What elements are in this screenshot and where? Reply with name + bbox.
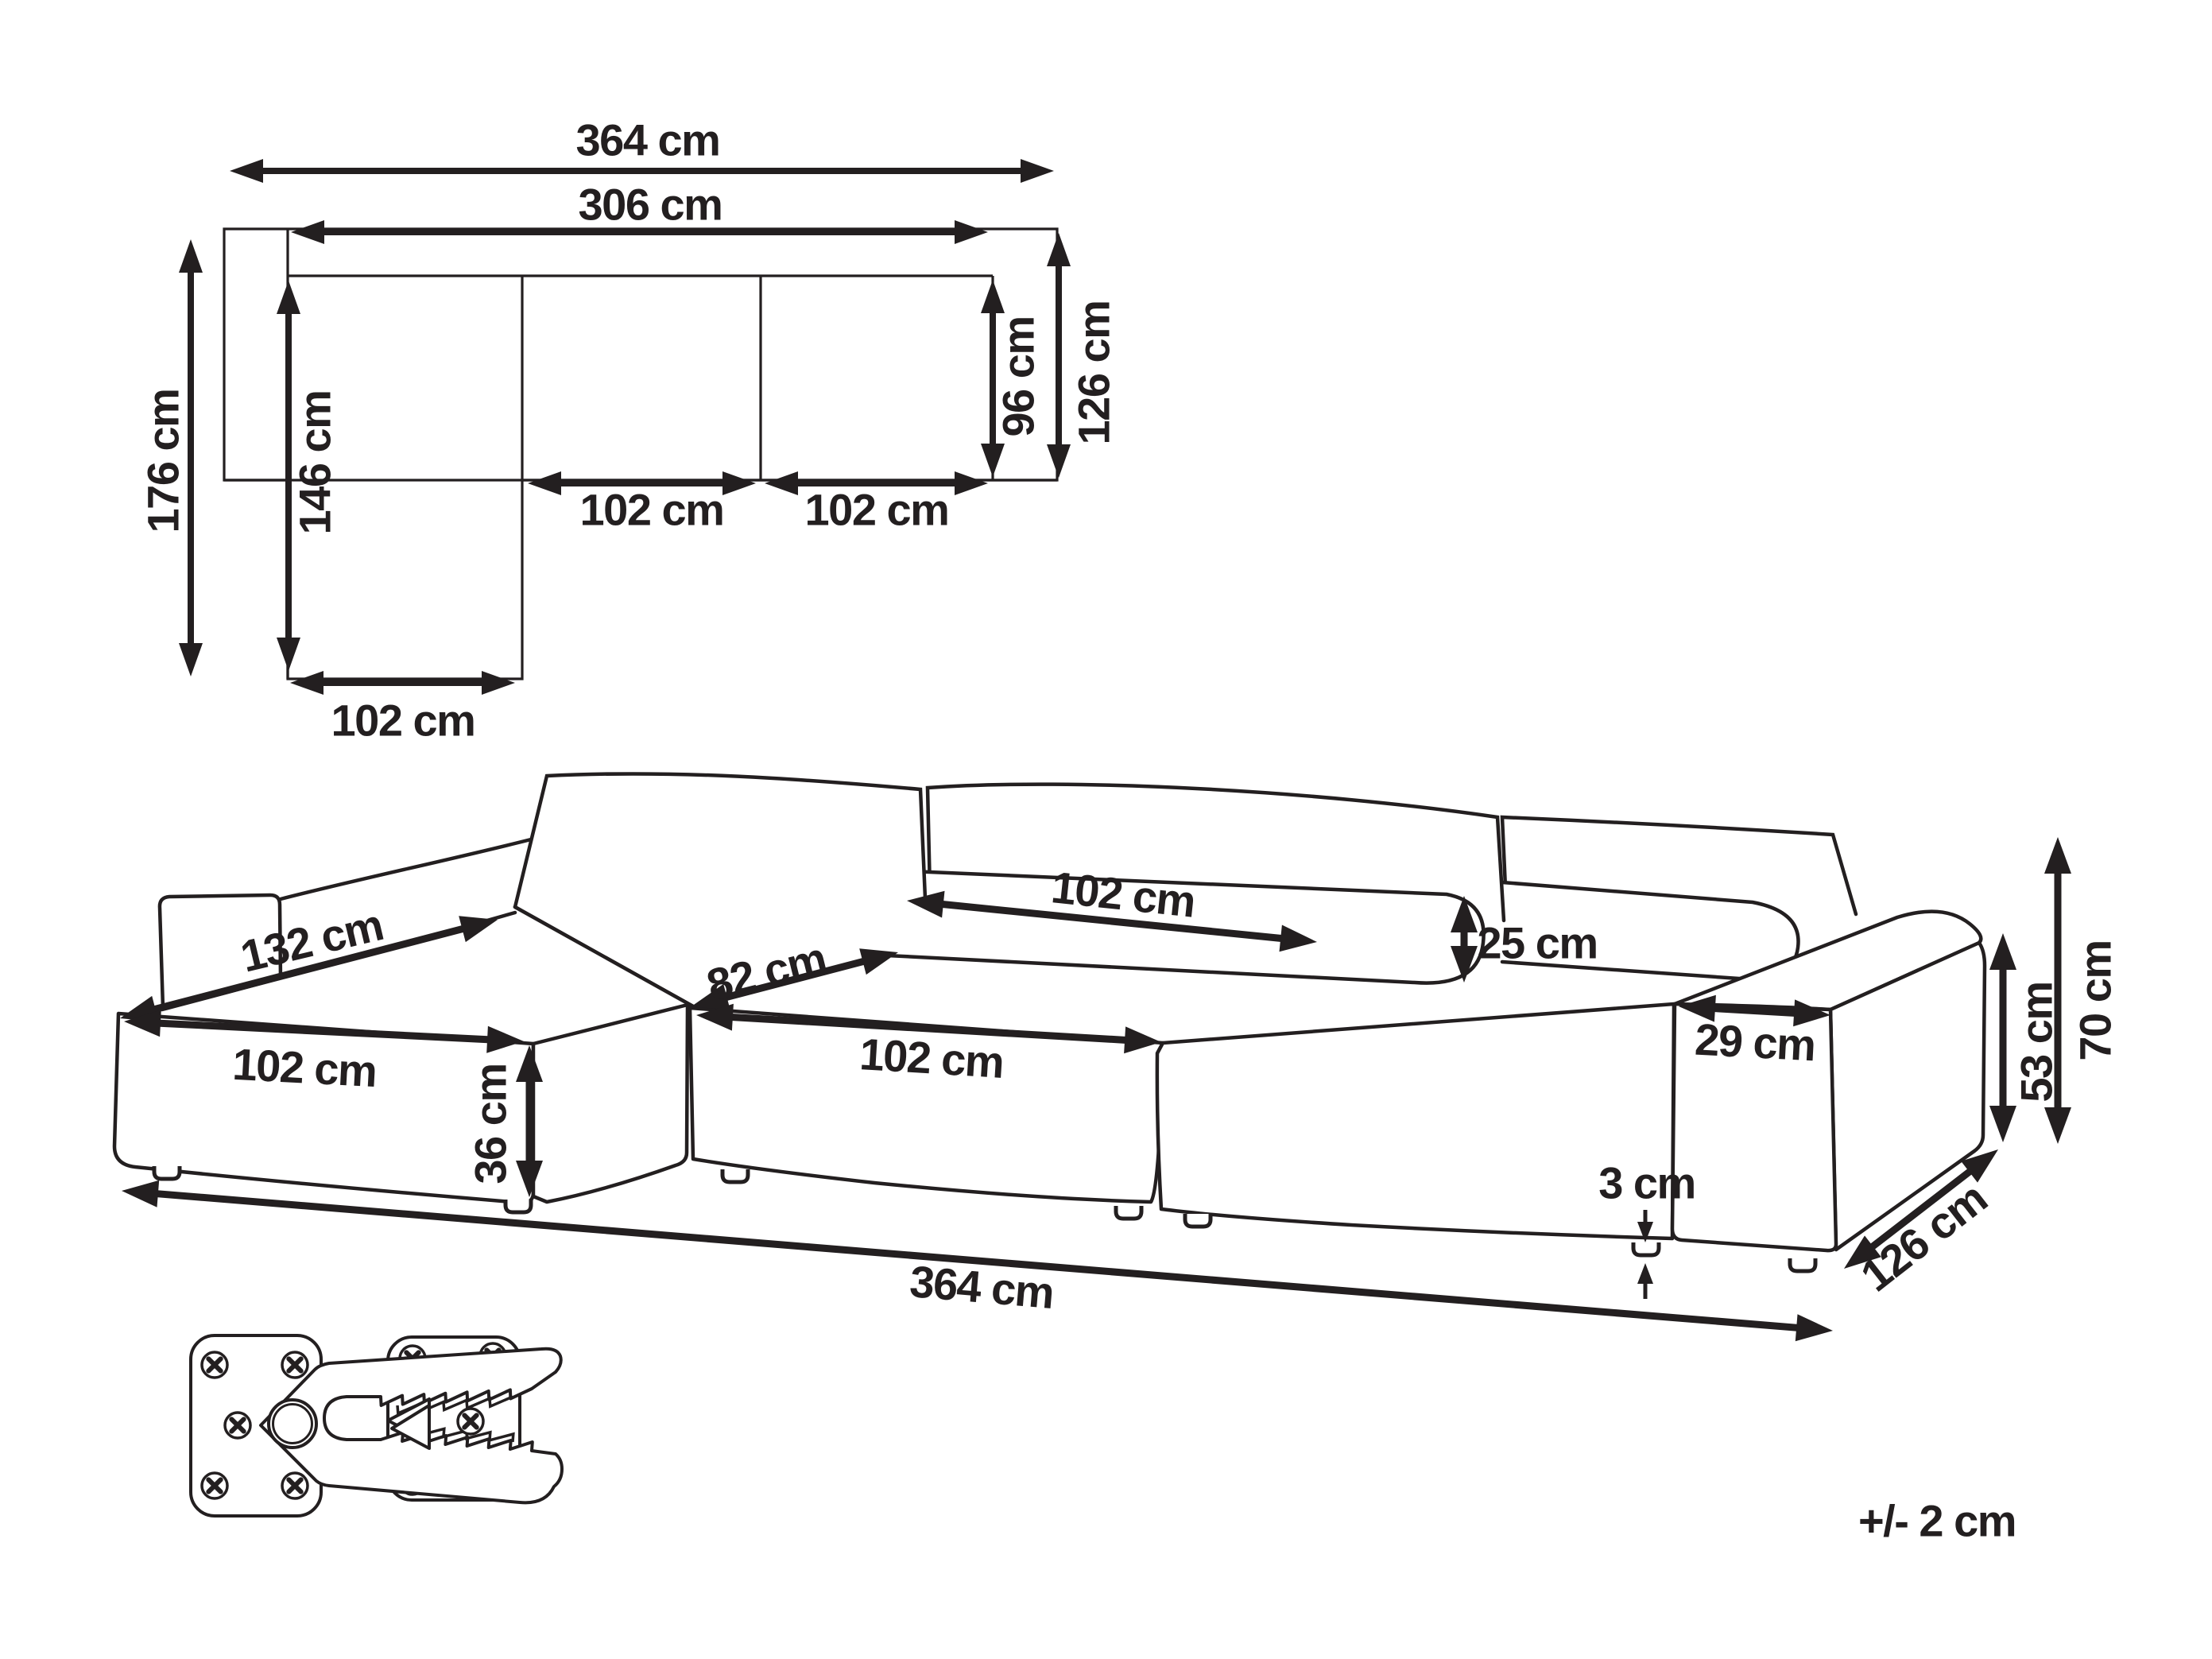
svg-text:+/- 2 cm: +/- 2 cm xyxy=(1858,1496,2016,1546)
svg-text:364 cm: 364 cm xyxy=(576,115,720,165)
svg-text:25 cm: 25 cm xyxy=(1477,918,1597,968)
svg-text:102 cm: 102 cm xyxy=(858,1029,1005,1087)
svg-text:96 cm: 96 cm xyxy=(994,316,1044,436)
svg-text:176 cm: 176 cm xyxy=(138,390,188,533)
svg-text:102 cm: 102 cm xyxy=(805,485,949,535)
svg-text:102 cm: 102 cm xyxy=(331,696,475,746)
svg-text:3 cm: 3 cm xyxy=(1598,1158,1695,1208)
svg-text:70 cm: 70 cm xyxy=(2071,940,2121,1060)
svg-text:29 cm: 29 cm xyxy=(1694,1014,1816,1071)
svg-text:53 cm: 53 cm xyxy=(2012,982,2062,1102)
svg-text:126 cm: 126 cm xyxy=(1069,301,1119,445)
svg-text:102 cm: 102 cm xyxy=(231,1039,378,1096)
svg-text:36 cm: 36 cm xyxy=(466,1064,516,1184)
svg-text:146 cm: 146 cm xyxy=(290,391,340,535)
svg-text:306 cm: 306 cm xyxy=(579,180,722,230)
svg-text:102 cm: 102 cm xyxy=(580,485,724,535)
